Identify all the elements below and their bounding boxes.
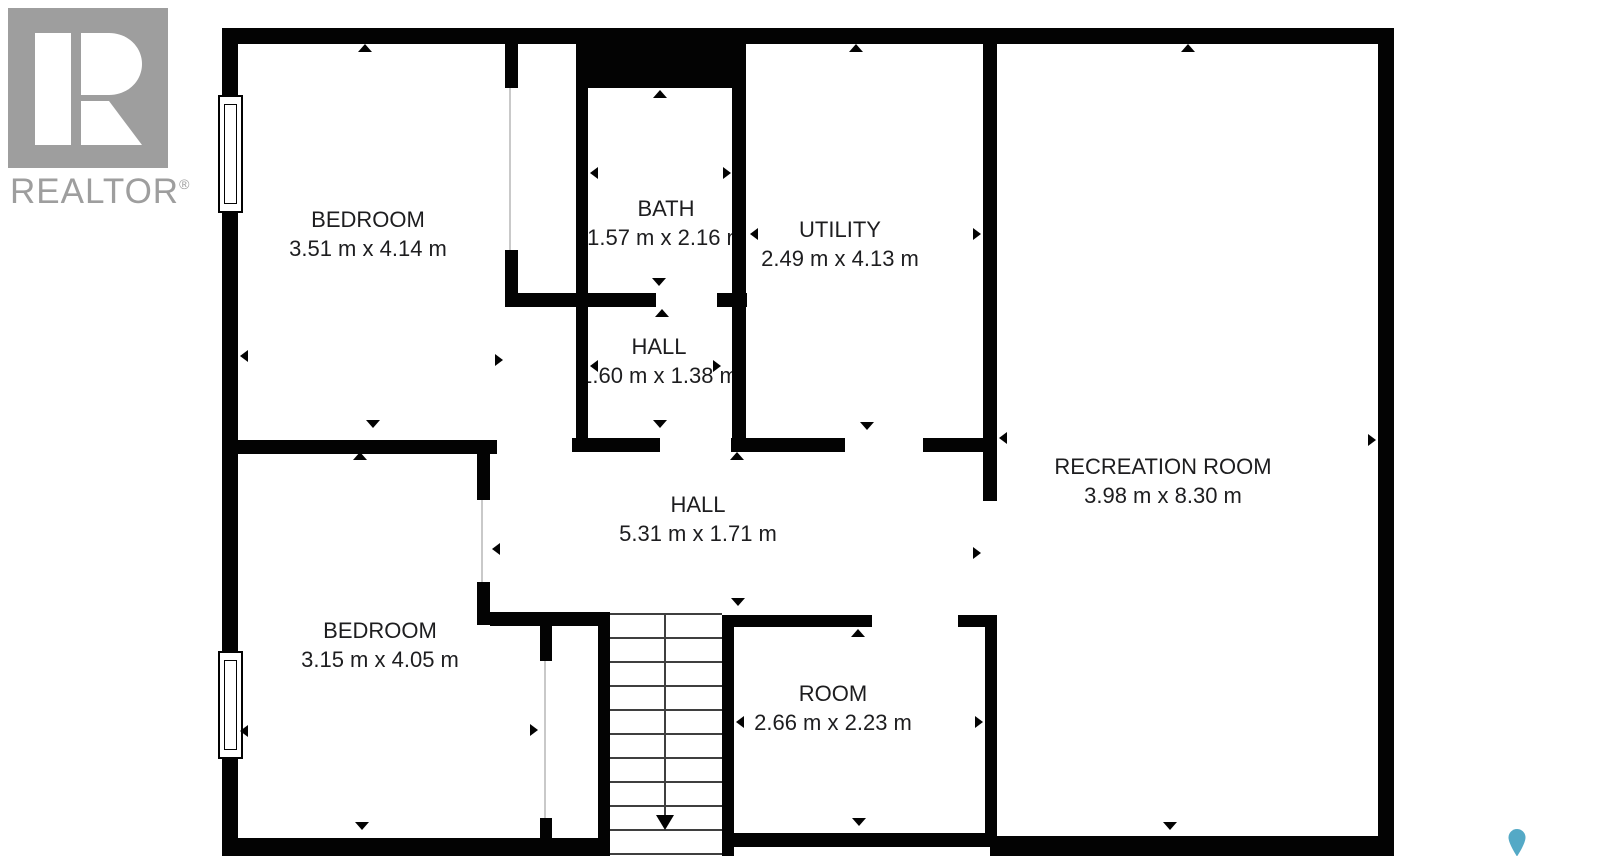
room-name: ROOM — [754, 679, 912, 708]
stair-tread — [610, 853, 722, 855]
dimension-arrow — [1163, 822, 1177, 830]
wall-exterior-bottom-right — [990, 836, 1393, 856]
dimension-arrow — [973, 547, 981, 559]
wall-hall-left-lower — [477, 582, 490, 625]
room-label-hall-large: HALL 5.31 m x 1.71 m — [619, 490, 777, 548]
stair-down-arrow-icon — [656, 815, 674, 830]
stair-tread — [610, 661, 722, 663]
door-bedroom1 — [509, 88, 511, 250]
stair-tread — [610, 613, 722, 615]
wall-bath-top-solid — [576, 44, 746, 88]
room-dimensions: 2.49 m x 4.13 m — [761, 244, 919, 273]
dimension-arrow — [851, 629, 865, 637]
staircase — [610, 613, 722, 856]
stair-tread — [610, 685, 722, 687]
stair-tread — [610, 637, 722, 639]
room-dimensions: 3.15 m x 4.05 m — [301, 645, 459, 674]
stair-tread — [610, 805, 722, 807]
wall-bedroom2-right-lower — [540, 818, 552, 856]
room-name: BEDROOM — [289, 205, 447, 234]
dimension-arrow — [849, 44, 863, 52]
dimension-arrow — [355, 822, 369, 830]
map-pin-icon — [1507, 828, 1527, 856]
wall-stairs-left — [598, 625, 610, 856]
door-bedroom2-closet — [544, 661, 546, 818]
dimension-arrow — [736, 716, 744, 728]
dimension-arrow — [730, 452, 744, 460]
realtor-logo-icon — [8, 8, 168, 168]
room-label-room: ROOM 2.66 m x 2.23 m — [754, 679, 912, 737]
room-name: BEDROOM — [301, 616, 459, 645]
dimension-arrow — [590, 360, 598, 372]
wall-room-bottom — [722, 833, 997, 847]
realtor-wordmark: REALTOR® — [10, 172, 190, 212]
dimension-arrow — [1181, 44, 1195, 52]
room-dimensions: 3.51 m x 4.14 m — [289, 234, 447, 263]
wall-room-left — [722, 615, 734, 856]
wall-bath-utility-divider — [732, 44, 746, 450]
dimension-arrow — [1368, 434, 1376, 446]
room-dimensions: 5.31 m x 1.71 m — [619, 519, 777, 548]
window-bedroom1 — [218, 95, 243, 213]
stair-tread — [610, 781, 722, 783]
dimension-arrow — [240, 725, 248, 737]
room-name: HALL — [580, 332, 738, 361]
wall-exterior-right — [1378, 28, 1394, 856]
wall-bedroom1-right-upper — [505, 44, 518, 88]
dimension-arrow — [999, 432, 1007, 444]
dimension-arrow — [723, 167, 731, 179]
room-label-utility: UTILITY 2.49 m x 4.13 m — [761, 215, 919, 273]
room-dimensions: 1.57 m x 2.16 m — [587, 223, 745, 252]
dimension-arrow — [713, 360, 721, 372]
window-pane — [224, 104, 237, 204]
wall-exterior-top — [222, 28, 1393, 44]
stair-tread — [610, 709, 722, 711]
dimension-arrow — [655, 309, 669, 317]
dimension-arrow — [731, 598, 745, 606]
dimension-arrow — [860, 422, 874, 430]
wall-hall-top-seg1 — [572, 438, 660, 452]
wall-bedroom2-right-upper — [540, 621, 552, 661]
registered-mark: ® — [179, 176, 190, 192]
window-bedroom2 — [218, 651, 243, 759]
dimension-arrow — [530, 724, 538, 736]
wall-room-top — [722, 615, 872, 627]
dimension-arrow — [975, 716, 983, 728]
dimension-arrow — [653, 420, 667, 428]
window-pane — [224, 660, 237, 750]
door-bedroom2-upper — [481, 500, 483, 582]
dimension-arrow — [852, 818, 866, 826]
wall-hall-left-upper — [477, 445, 490, 500]
room-label-recreation-room: RECREATION ROOM 3.98 m x 8.30 m — [1054, 452, 1271, 510]
room-name: BATH — [587, 194, 745, 223]
wall-bath-left — [576, 44, 588, 450]
dimension-arrow — [653, 90, 667, 98]
dimension-arrow — [973, 228, 981, 240]
wall-hall-top-seg2 — [731, 438, 845, 452]
wall-utility-recreation-divider — [983, 43, 997, 501]
dimension-arrow — [358, 44, 372, 52]
dimension-arrow — [492, 543, 500, 555]
room-dimensions: 3.98 m x 8.30 m — [1054, 481, 1271, 510]
room-label-bath: BATH 1.57 m x 2.16 m — [587, 194, 745, 252]
stair-tread — [610, 757, 722, 759]
dimension-arrow — [240, 350, 248, 362]
floor-plan: BEDROOM 3.51 m x 4.14 m BATH 1.57 m x 2.… — [0, 0, 1600, 856]
dimension-arrow — [590, 167, 598, 179]
wall-room-right — [985, 615, 997, 845]
stair-direction-line — [664, 613, 666, 817]
dimension-arrow — [750, 228, 758, 240]
dimension-arrow — [652, 278, 666, 286]
room-label-bedroom-2: BEDROOM 3.15 m x 4.05 m — [301, 616, 459, 674]
dimension-arrow — [353, 452, 367, 460]
room-name: HALL — [619, 490, 777, 519]
stair-tread — [610, 733, 722, 735]
room-dimensions: 2.66 m x 2.23 m — [754, 708, 912, 737]
room-name: RECREATION ROOM — [1054, 452, 1271, 481]
dimension-arrow — [495, 354, 503, 366]
realtor-logo: REALTOR® — [8, 8, 168, 173]
room-label-bedroom-1: BEDROOM 3.51 m x 4.14 m — [289, 205, 447, 263]
room-name: UTILITY — [761, 215, 919, 244]
dimension-arrow — [366, 420, 380, 428]
